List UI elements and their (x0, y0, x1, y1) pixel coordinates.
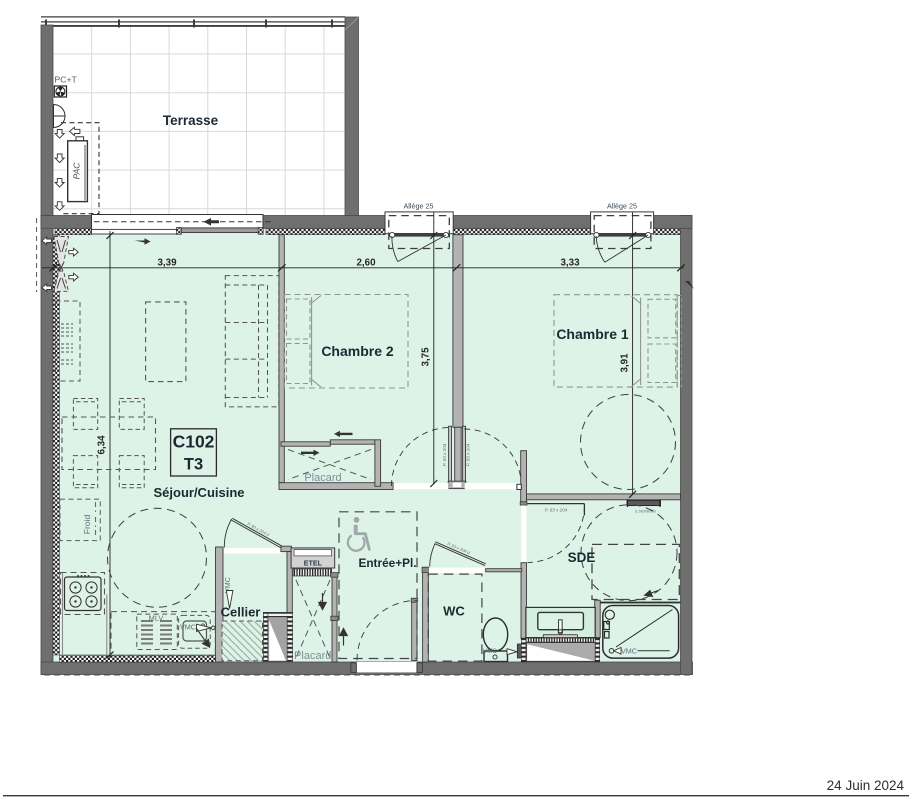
svg-text:C102: C102 (173, 432, 215, 452)
svg-text:3,33: 3,33 (560, 257, 580, 268)
svg-text:6,34: 6,34 (97, 435, 108, 455)
svg-text:SDE: SDE (568, 550, 596, 565)
svg-text:VMC: VMC (621, 647, 637, 656)
svg-text:Cellier: Cellier (221, 605, 261, 620)
svg-text:Séjour/Cuisine: Séjour/Cuisine (153, 485, 244, 500)
svg-text:P. 83 x 204: P. 83 x 204 (545, 508, 568, 513)
svg-text:Placard: Placard (304, 472, 341, 484)
svg-text:Entrée+Pl.: Entrée+Pl. (358, 556, 416, 570)
svg-text:MLV: MLV (149, 614, 164, 623)
svg-text:Allège 25: Allège 25 (607, 201, 637, 210)
svg-text:Froid: Froid (82, 514, 92, 534)
svg-text:VMC: VMC (180, 622, 196, 631)
svg-text:VMC: VMC (483, 648, 497, 655)
svg-text:T3: T3 (184, 456, 203, 474)
svg-text:PAC: PAC (72, 162, 82, 180)
svg-text:2,60: 2,60 (356, 257, 376, 268)
svg-text:24 Juin 2024: 24 Juin 2024 (827, 778, 905, 793)
svg-text:PC+T: PC+T (55, 75, 78, 85)
svg-text:Chambre 1: Chambre 1 (556, 326, 629, 342)
svg-text:P. 83 x 204: P. 83 x 204 (466, 443, 471, 466)
svg-text:3,75: 3,75 (420, 347, 431, 367)
svg-text:WC: WC (443, 604, 465, 619)
svg-text:3,39: 3,39 (157, 257, 177, 268)
svg-text:ETEL: ETEL (304, 559, 323, 568)
svg-text:Placard: Placard (294, 650, 331, 662)
svg-text:Terrasse: Terrasse (163, 113, 219, 128)
svg-text:Allège 25: Allège 25 (404, 201, 434, 210)
svg-text:P. 83 x 204: P. 83 x 204 (442, 443, 447, 466)
svg-text:3,91: 3,91 (619, 353, 630, 373)
svg-text:Chambre 2: Chambre 2 (321, 343, 394, 359)
